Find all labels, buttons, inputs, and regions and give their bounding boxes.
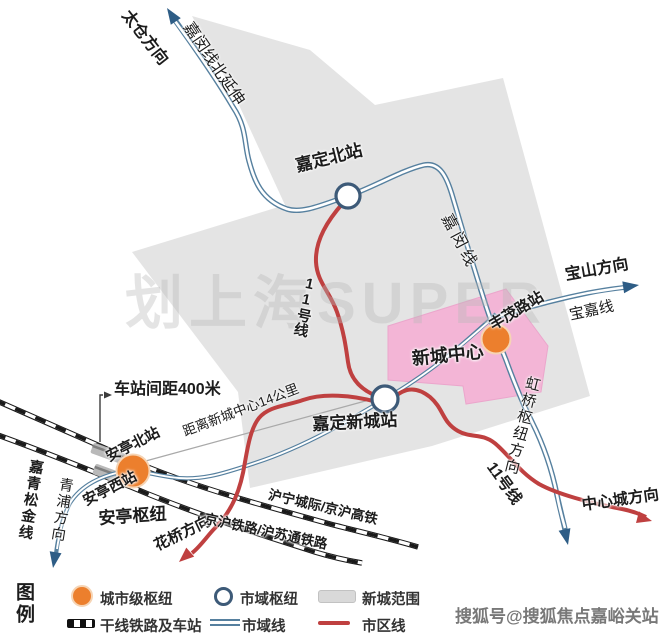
regional-hub-icon: [214, 587, 233, 606]
trunk-railway-icon: [67, 619, 95, 628]
legend-urban-line-label: 市区线: [362, 615, 406, 636]
jiading-xincheng-station-marker: [372, 386, 398, 412]
legend-city-hub-label: 城市级枢纽: [100, 588, 173, 609]
xincheng-area-icon: [318, 590, 356, 603]
transit-map: 划上海SUPER 搜狐号@搜狐焦点嘉峪关站 太仓方向 嘉闵线北延伸 嘉定北站 嘉…: [0, 0, 660, 636]
legend-title: 图例: [13, 582, 33, 626]
legend-trunk-railway-label: 干线铁路及车站: [100, 615, 202, 636]
spacing-leader: [100, 392, 112, 443]
legend-xincheng-area-label: 新城范围: [362, 588, 420, 609]
jiading-north-station-marker: [336, 184, 360, 208]
urban-line-icon: [318, 621, 350, 625]
legend-regional-hub-label: 市域枢纽: [240, 588, 298, 609]
legend-regional-line-label: 市域线: [242, 615, 286, 636]
city-hub-icon: [71, 585, 93, 607]
regional-line-icon: [210, 619, 240, 626]
sohu-watermark: 搜狐号@搜狐焦点嘉峪关站: [455, 602, 659, 627]
center-watermark: 划上海SUPER: [125, 256, 547, 340]
annotation-spacing: 车站间距400米: [114, 382, 221, 399]
